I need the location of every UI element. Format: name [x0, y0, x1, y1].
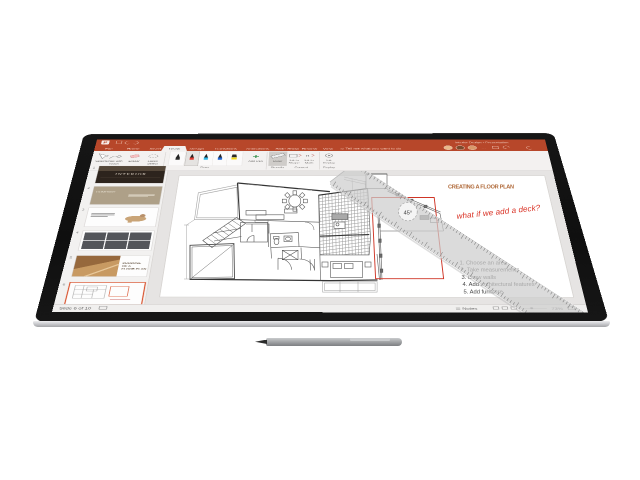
svg-text:CREATING A FLOOR PLAN: CREATING A FLOOR PLAN — [448, 185, 514, 191]
svg-text:what if we add a deck?: what if we add a deck? — [456, 203, 541, 221]
svg-text:45°: 45° — [404, 210, 412, 216]
